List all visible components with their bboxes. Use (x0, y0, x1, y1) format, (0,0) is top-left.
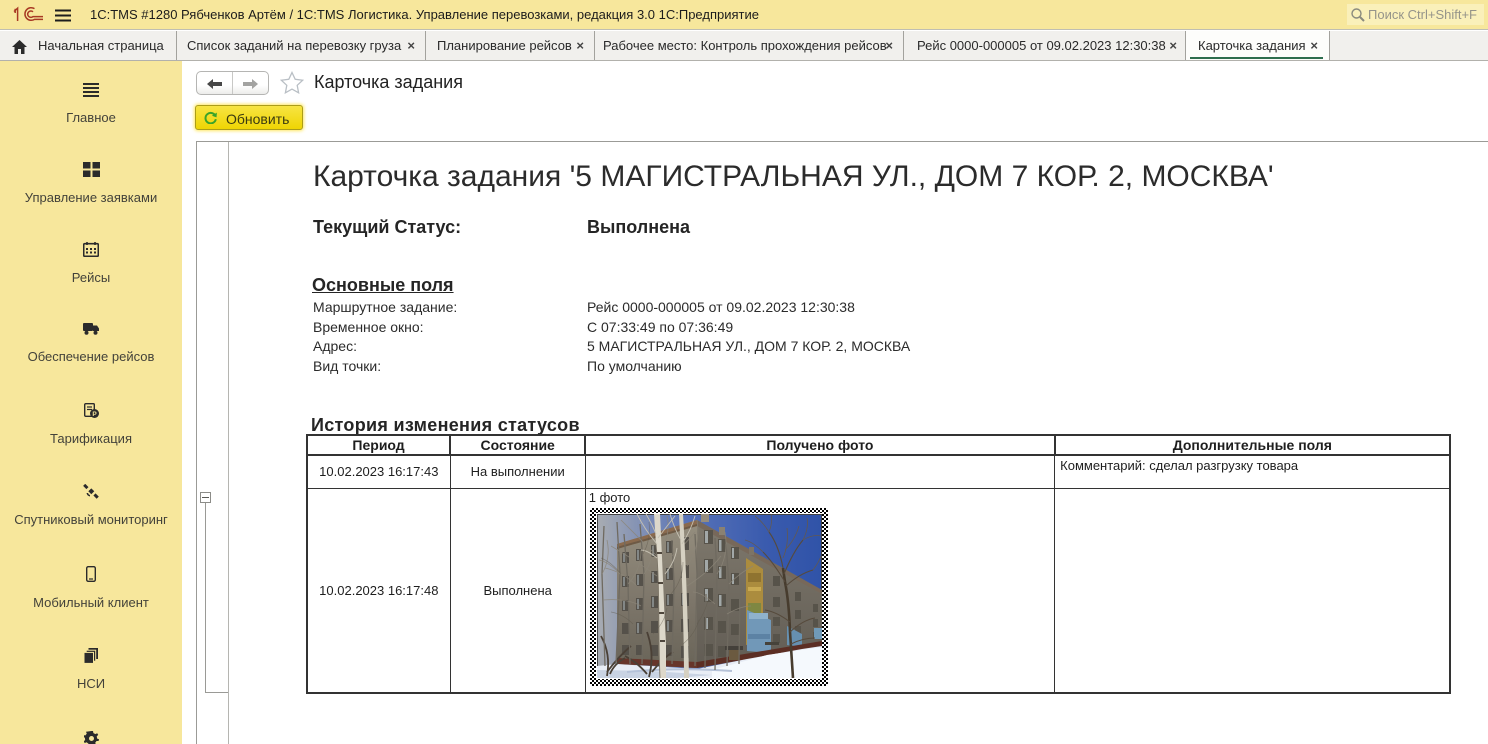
svg-text:P: P (92, 411, 97, 418)
